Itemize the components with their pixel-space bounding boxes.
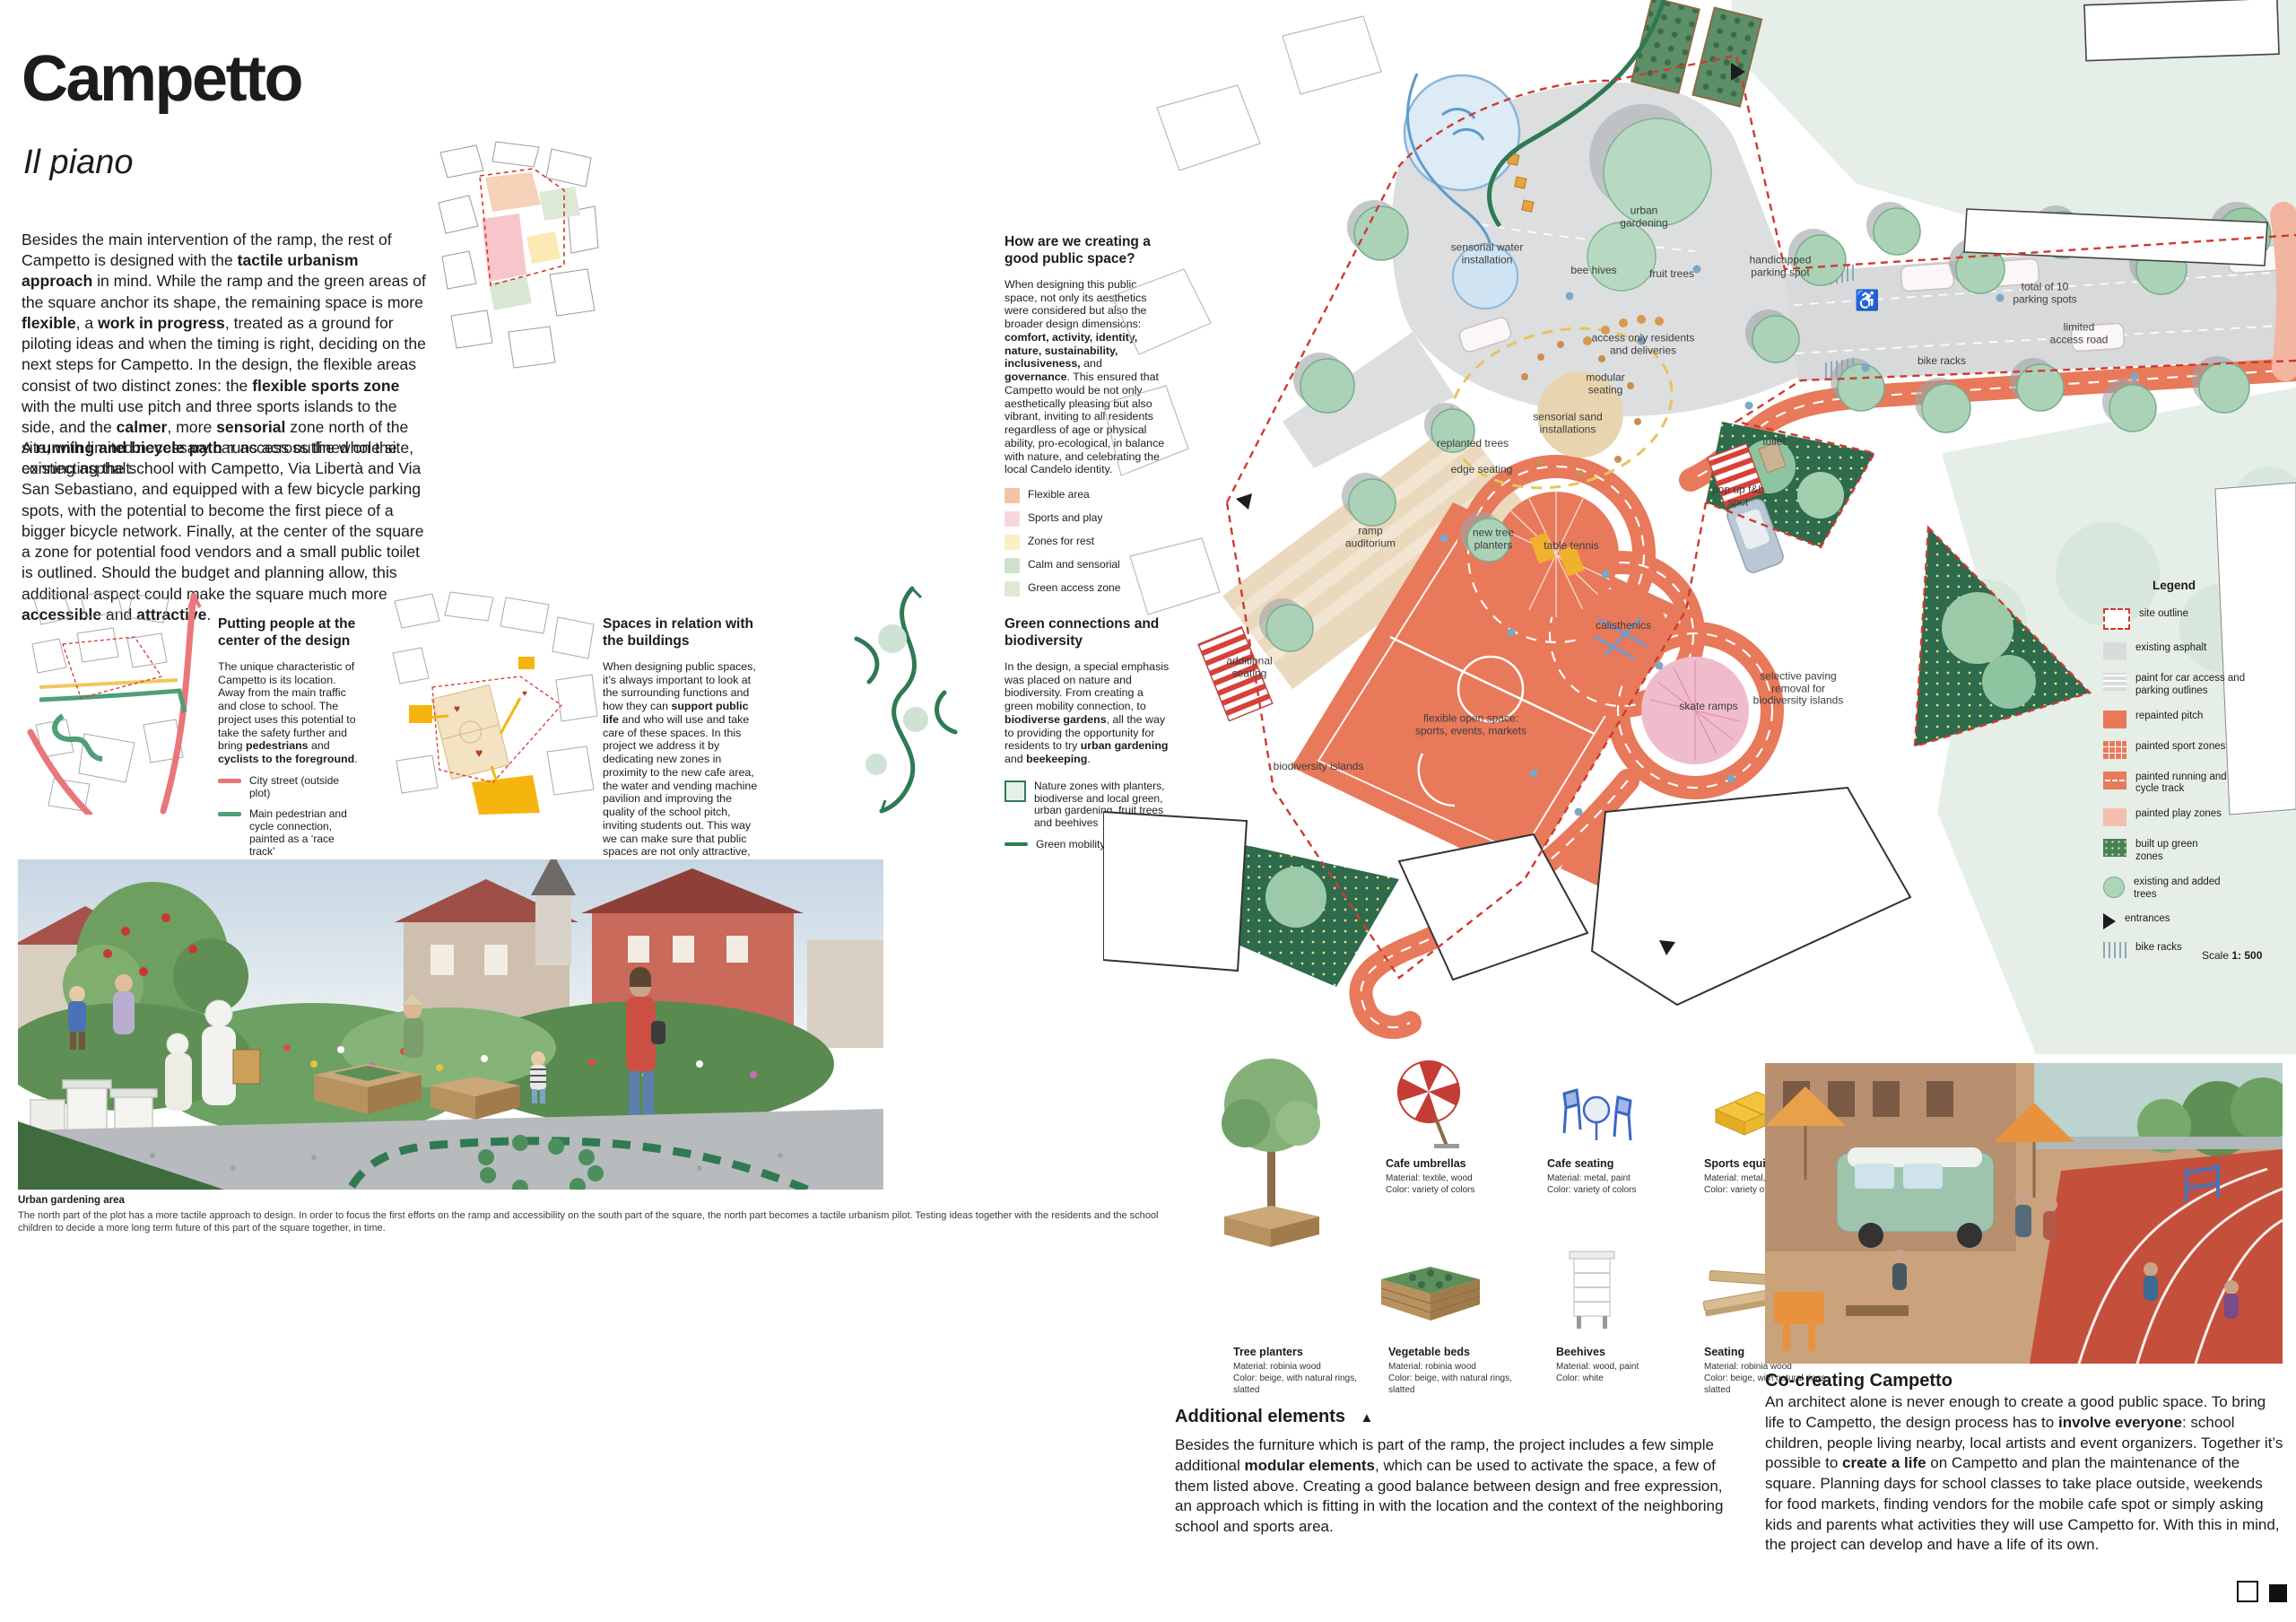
legend-label: existing and added trees [2134,876,2223,902]
legend-label: bike racks [2135,942,2182,955]
footer-outline-square-icon [2237,1581,2258,1602]
page-title: Campetto [22,47,301,111]
legend-label: painted play zones [2135,808,2225,821]
repainted-pitch-swatch [2103,711,2126,728]
city-street-line [218,779,241,783]
trees-swatch [2103,876,2125,898]
legend-label: site outline [2139,608,2188,621]
page-subtitle: Il piano [23,144,134,182]
nature-zones-swatch [1004,780,1026,802]
green-mobility-line [1004,842,1028,846]
paint-car-swatch [2103,673,2126,691]
plan-label: biodiversity islands [1256,761,1381,773]
flexible-area-swatch [1004,488,1020,503]
scale-value: 1: 500 [2231,949,2262,962]
furniture-material: Material: robinia wood [1388,1361,1523,1373]
plan-label: additional seating [1226,655,1272,679]
play-zones-swatch [2103,808,2126,826]
furniture-material: Material: wood, paint [1556,1361,1691,1373]
photo-caption-title: Urban gardening area [18,1195,125,1206]
cocreating-photo [1765,1063,2283,1364]
entrances-swatch [2103,913,2116,929]
furniture-color: Color: white [1556,1373,1691,1384]
svg-text:♥: ♥ [454,702,460,715]
footer-marks [2237,1581,2287,1607]
site-outline-swatch [2103,608,2130,630]
additional-heading-text: Additional elements [1175,1407,1345,1426]
mobility-map [27,590,211,819]
plan-scale: Scale 1: 500 [2202,949,2262,962]
beehive-icon [1552,1243,1632,1341]
legend-label: City street (outside plot) [249,775,361,800]
legend-label: Flexible area [1028,489,1090,501]
column-buildings-heading: Spaces in relation with the buildings [603,615,762,650]
plan-label: table tennis [1544,540,1598,553]
furniture-material: Material: metal, paint [1547,1173,1682,1184]
furniture-color: Color: variety of colors [1386,1184,1520,1196]
furniture-color: Color: beige, with natural rings, slatte… [1233,1373,1368,1396]
green-connections-map [830,585,978,818]
asphalt-swatch [2103,642,2126,660]
green-access-swatch [1004,581,1020,597]
legend-label: entrances [2125,913,2170,926]
legend-label: existing asphalt [2135,642,2206,655]
plan-label: flexible open space: sports, events, mar… [1399,712,1543,737]
column-buildings-body: When designing public spaces, it’s alway… [603,660,762,885]
additional-elements-heading: Additional elements ▲ [1175,1407,1373,1427]
plan-label: bike racks [1918,355,1966,368]
furniture-name: Tree planters [1233,1346,1368,1358]
poster-page: Campetto Il piano Order number: 100822 B… [0,0,2296,1622]
legend-label: Zones for rest [1028,536,1094,548]
furniture-material: Material: textile, wood [1386,1173,1520,1184]
plan-label: total of 10 parking spots [2013,281,2076,305]
footer-filled-square-icon [2269,1584,2287,1602]
svg-text:♥: ♥ [475,746,483,760]
legend-label: painted sport zones [2135,741,2225,754]
plan-label: sensorial sand installations [1533,411,1602,435]
furniture-tree-planters: Tree planters Material: robinia wood Col… [1233,1346,1368,1396]
cycle-connection-line [218,812,241,816]
column-people-body: The unique characteristic of Campetto is… [218,660,361,766]
column-buildings: Spaces in relation with the buildings Wh… [603,615,762,885]
furniture-cafe-umbrellas: Cafe umbrellas Material: textile, wood C… [1386,1157,1520,1196]
plan-label: handicapped parking spot [1750,254,1812,278]
plan-label: fruit trees [1649,268,1694,281]
furniture-beehives: Beehives Material: wood, paint Color: wh… [1556,1346,1691,1384]
triangle-up-icon: ▲ [1360,1410,1373,1426]
plan-label: selective paving removal for biodiversit… [1731,671,1865,708]
furniture-name: Vegetable beds [1388,1346,1523,1358]
plan-label: pop up f&b spot [1712,484,1764,508]
buildings-map: ♥ ♥ ♥ [386,590,599,819]
calm-sensorial-swatch [1004,558,1020,573]
green-zones-swatch [2103,839,2126,857]
sport-zones-swatch [2103,741,2126,759]
furniture-name: Beehives [1556,1346,1691,1358]
legend-label: painted running and cycle track [2135,772,2234,797]
plan-label: replanted trees [1419,438,1526,450]
furniture-color: Color: variety of colors [1547,1184,1682,1196]
plan-label: new tree planters [1473,527,1514,551]
plan-label: toilet [1762,436,1785,449]
context-map [433,140,599,376]
plan-legend-title: Legend [2152,579,2293,592]
legend-label: built up green zones [2135,839,2225,864]
plan-label: ramp auditorium [1345,525,1396,549]
plan-label: skate ramps [1679,701,1737,713]
running-track-swatch [2103,772,2126,789]
furniture-vegetable-beds: Vegetable beds Material: robinia wood Co… [1388,1346,1523,1396]
svg-text:♥: ♥ [522,689,527,699]
plan-label: access only residents and deliveries [1567,332,1719,356]
plan-label: edge seating [1432,464,1531,476]
plan-label: calisthenics [1596,620,1651,632]
sports-play-swatch [1004,511,1020,527]
zones-rest-swatch [1004,535,1020,550]
plan-label: sensorial water installation [1451,241,1524,266]
bike-racks-swatch [2103,942,2126,958]
column-people-heading: Putting people at the center of the desi… [218,615,361,650]
photo-caption-text: The north part of the plot has a more ta… [18,1209,1166,1235]
plan-legend: Legend site outline existing asphalt pai… [2103,579,2293,971]
legend-label: Main pedestrian and cycle connection, pa… [249,808,361,858]
plan-label: modular seating [1586,371,1624,396]
cocreating-heading: Co-creating Campetto [1765,1371,1952,1391]
vegetable-bed-icon [1372,1249,1489,1339]
legend-label: Sports and play [1028,512,1102,525]
furniture-material: Material: robinia wood [1233,1361,1368,1373]
plan-label: bee hives [1570,265,1616,277]
furniture-name: Cafe seating [1547,1157,1682,1170]
plan-label: urban gardening [1620,205,1667,229]
cocreating-body: An architect alone is never enough to cr… [1765,1392,2283,1556]
legend-label: repainted pitch [2135,711,2203,723]
svg-text:♿: ♿ [1855,289,1879,311]
furniture-color: Color: beige, with natural rings, slatte… [1388,1373,1523,1396]
furniture-name: Cafe umbrellas [1386,1157,1520,1170]
urban-gardening-photo [18,859,883,1190]
additional-elements-body: Besides the furniture which is part of t… [1175,1435,1740,1538]
plan-label: limited access road [2050,321,2109,345]
cafe-umbrella-icon [1377,1054,1484,1157]
scale-label: Scale [2202,949,2229,962]
tree-planter-icon [1215,1041,1332,1251]
legend-label: paint for car access and parking outline… [2135,673,2252,698]
cafe-seating-icon [1543,1063,1650,1157]
furniture-cafe-seating: Cafe seating Material: metal, paint Colo… [1547,1157,1682,1196]
